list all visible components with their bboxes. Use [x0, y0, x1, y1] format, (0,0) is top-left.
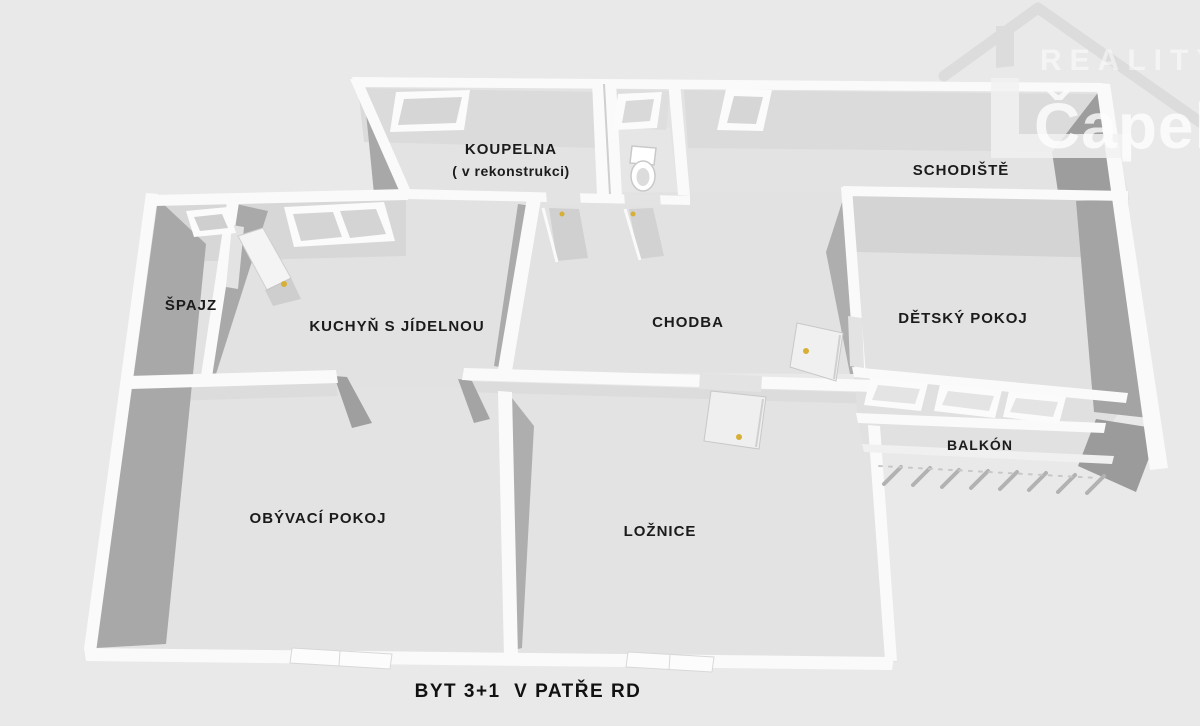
kuchyn-double-window	[284, 202, 395, 247]
door-knob	[560, 212, 565, 217]
room-label-koupelna: KOUPELNA	[465, 141, 557, 158]
room-label-schodiste: SCHODIŠTĚ	[913, 161, 1010, 179]
window-pane	[194, 214, 228, 231]
room-label-detsky-pokoj: DĚTSKÝ POKOJ	[898, 309, 1028, 327]
room-label-loznice: LOŽNICE	[624, 522, 697, 540]
wc-door-opening	[624, 193, 661, 207]
plan-caption: BYT 3+1 V PATŘE RD	[415, 680, 642, 702]
room-label-balkon: BALKÓN	[947, 436, 1013, 453]
detsky-door-opening	[848, 316, 864, 368]
room-label-kuchyn: KUCHYŇ S JÍDELNOU	[309, 317, 484, 335]
loznice-door-opening	[699, 373, 762, 392]
floor-plan-image: KOUPELNA ( v rekonstrukci) SCHODIŠTĚ ŠPA…	[0, 0, 1200, 726]
window-pane	[622, 99, 654, 123]
toilet-bowl-inner	[637, 168, 650, 186]
room-label-spajz: ŠPAJZ	[165, 296, 217, 314]
door-knob	[281, 281, 287, 287]
room-note-koupelna: ( v rekonstrukci)	[452, 163, 569, 179]
spajz-window	[186, 207, 236, 237]
wc-window	[613, 92, 662, 130]
room-label-obyvaci-pokoj: OBÝVACÍ POKOJ	[250, 509, 387, 527]
door-knob	[803, 348, 809, 354]
door-knob	[736, 434, 742, 440]
floor-plan-canvas: KOUPELNA ( v rekonstrukci) SCHODIŠTĚ ŠPA…	[0, 0, 1200, 726]
door-knob	[631, 212, 636, 217]
watermark-text-reality: REALITY	[1040, 44, 1200, 77]
bottom-row-floor	[86, 388, 897, 662]
koupelna-window	[390, 90, 470, 132]
watermark-text-capek: Čapek	[1034, 89, 1200, 162]
schodiste-window	[717, 89, 772, 131]
room-label-chodba: CHODBA	[652, 314, 724, 331]
loznice-door	[704, 391, 766, 449]
window-pane	[398, 97, 462, 125]
toilet	[630, 146, 656, 191]
koupelna-door-opening	[546, 191, 581, 206]
logo-house-chimney	[996, 26, 1014, 68]
